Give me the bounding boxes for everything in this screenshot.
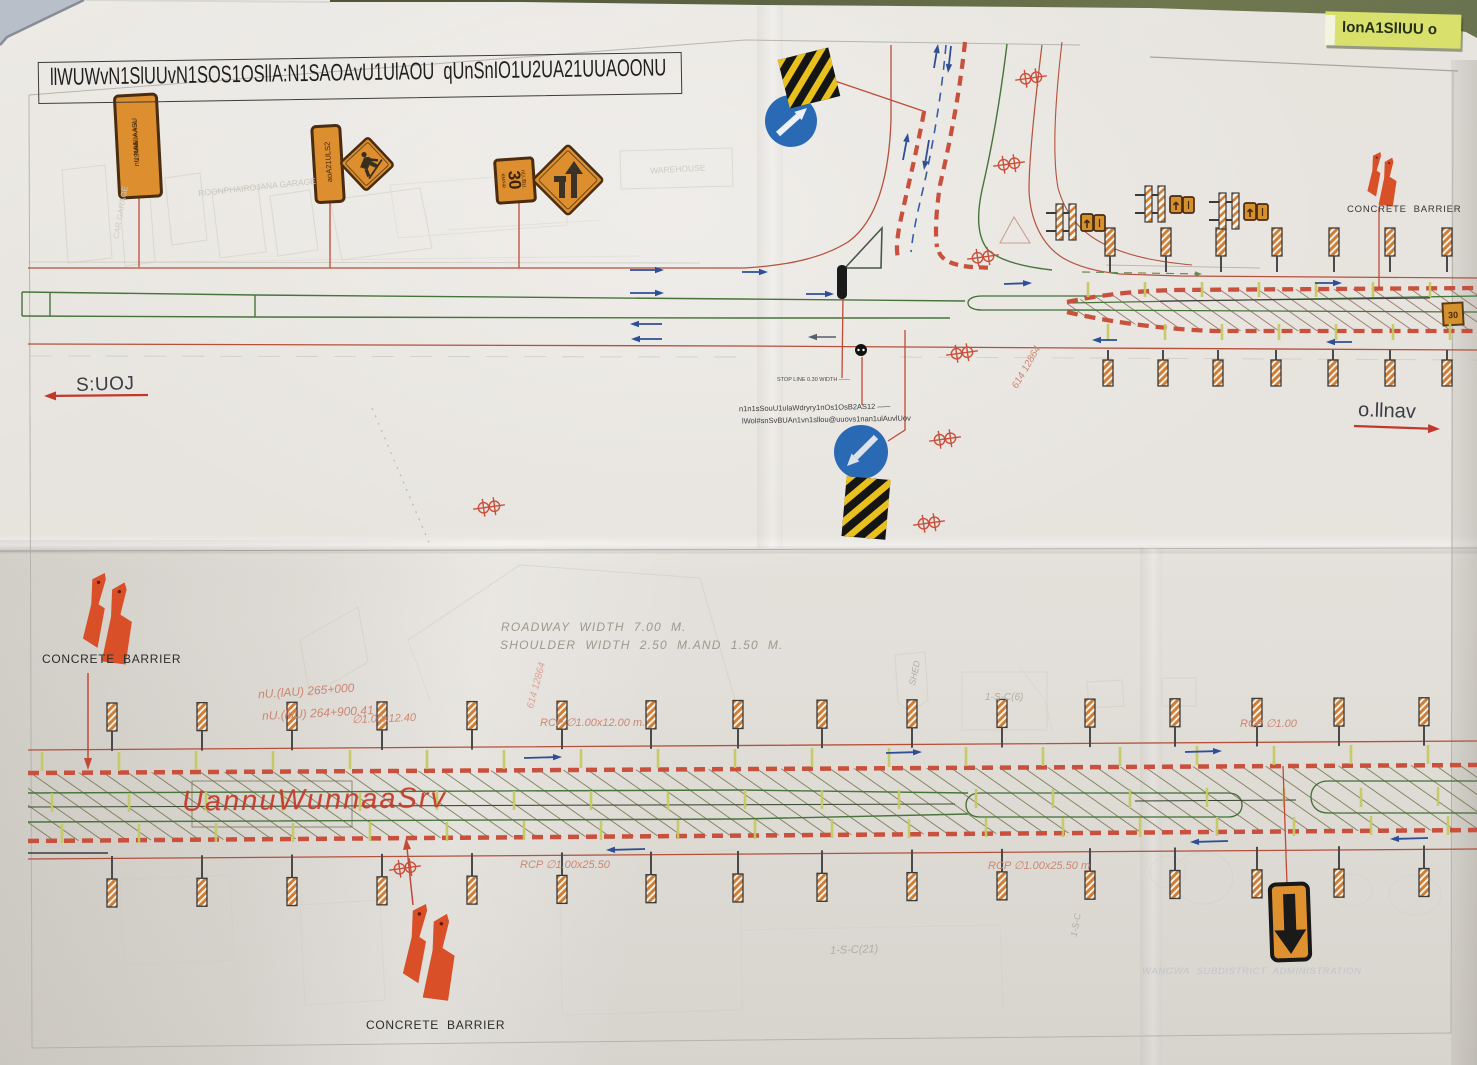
svg-text:KM/HR: KM/HR (501, 173, 507, 189)
svg-text:30: 30 (1448, 310, 1459, 321)
